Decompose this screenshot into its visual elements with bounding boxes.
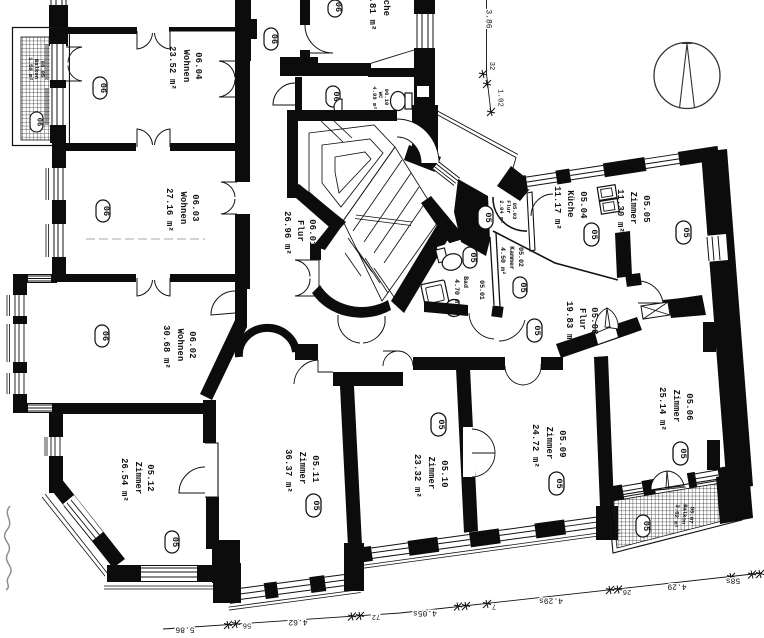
svg-text:26.54 m²: 26.54 m² <box>119 458 129 502</box>
svg-text:36.37 m²: 36.37 m² <box>283 449 293 493</box>
svg-text:06: 06 <box>100 331 110 341</box>
svg-text:4.50 m²: 4.50 m² <box>499 247 506 275</box>
svg-text:Wohnen: Wohnen <box>181 50 191 83</box>
svg-text:Zimmer: Zimmer <box>426 457 436 490</box>
svg-text:4.62: 4.62 <box>288 617 307 626</box>
svg-text:05.05: 05.05 <box>641 195 651 222</box>
svg-text:06: 06 <box>269 34 279 44</box>
svg-text:26: 26 <box>623 587 631 595</box>
svg-text:Zimmer: Zimmer <box>544 427 554 460</box>
svg-text:06.02: 06.02 <box>187 331 197 358</box>
svg-text:05: 05 <box>468 252 478 262</box>
svg-text:05: 05 <box>678 448 688 458</box>
svg-text:Kammer: Kammer <box>508 246 515 270</box>
svg-text:3.86: 3.86 <box>484 9 493 28</box>
svg-text:05.06: 05.06 <box>684 393 694 420</box>
svg-text:Bad: Bad <box>462 276 469 288</box>
svg-text:05.01: 05.01 <box>478 280 485 300</box>
svg-text:19.83 m²: 19.83 m² <box>564 301 574 345</box>
svg-text:4.09 m²: 4.09 m² <box>371 86 378 110</box>
svg-text:06: 06 <box>333 2 343 12</box>
svg-text:56: 56 <box>243 621 251 629</box>
svg-text:Zimmer: Zimmer <box>671 390 681 423</box>
svg-text:05: 05 <box>641 521 651 531</box>
svg-text:05: 05 <box>483 212 493 222</box>
svg-text:32: 32 <box>487 62 495 70</box>
svg-text:05.08: 05.08 <box>589 307 599 334</box>
svg-text:Zimmer: Zimmer <box>628 192 638 225</box>
svg-text:05: 05 <box>436 419 446 429</box>
svg-text:Flur: Flur <box>577 308 587 330</box>
svg-text:Flur: Flur <box>505 200 512 213</box>
svg-text:4.29s: 4.29s <box>539 596 563 605</box>
svg-text:2.04 m²: 2.04 m² <box>498 200 505 224</box>
svg-text:05.04: 05.04 <box>578 191 588 219</box>
svg-text:26.96 m²: 26.96 m² <box>282 211 292 255</box>
svg-text:58s: 58s <box>726 576 741 585</box>
svg-text:27.16 m²: 27.16 m² <box>164 188 174 232</box>
svg-text:24.72 m²: 24.72 m² <box>530 424 540 468</box>
svg-text:1.02: 1.02 <box>496 89 504 107</box>
svg-text:05.12: 05.12 <box>145 464 155 491</box>
svg-text:05: 05 <box>518 282 528 292</box>
svg-text:23.52 m²: 23.52 m² <box>167 46 177 90</box>
svg-text:72: 72 <box>372 612 380 620</box>
svg-text:4.70 m²: 4.70 m² <box>453 279 460 307</box>
svg-text:4.29: 4.29 <box>667 582 686 591</box>
svg-text:05.11: 05.11 <box>310 455 320 482</box>
svg-text:30.68 m²: 30.68 m² <box>161 325 171 369</box>
svg-text:Wohnen: Wohnen <box>175 329 185 362</box>
svg-text:05.02: 05.02 <box>517 247 524 267</box>
svg-text:05: 05 <box>532 325 542 335</box>
svg-text:05: 05 <box>170 537 180 547</box>
svg-text:4.05s: 4.05s <box>413 608 437 617</box>
svg-text:Flur: Flur <box>295 220 305 242</box>
svg-text:06: 06 <box>35 118 43 126</box>
svg-text:05: 05 <box>311 500 321 510</box>
svg-text:che: che <box>381 0 391 16</box>
svg-text:05: 05 <box>681 227 691 237</box>
svg-text:1.50 m²: 1.50 m² <box>27 57 34 81</box>
svg-text:06.03: 06.03 <box>190 194 200 221</box>
svg-text:7: 7 <box>492 602 496 610</box>
svg-text:11.17 m²: 11.17 m² <box>552 186 562 230</box>
svg-text:05: 05 <box>554 478 564 488</box>
svg-text:05.09: 05.09 <box>557 430 567 457</box>
svg-text:23.32 m²: 23.32 m² <box>412 454 422 498</box>
svg-text:06: 06 <box>98 83 108 93</box>
svg-text:06: 06 <box>101 206 111 216</box>
svg-text:.81 m²: .81 m² <box>367 0 377 30</box>
svg-text:05: 05 <box>589 229 599 239</box>
svg-text:05.10: 05.10 <box>439 460 449 487</box>
svg-text:Zimmer: Zimmer <box>133 462 143 495</box>
svg-text:06.01: 06.01 <box>307 219 317 246</box>
svg-text:Küche: Küche <box>565 190 575 217</box>
svg-text:11.30 m²: 11.30 m² <box>615 189 625 233</box>
svg-text:06.04: 06.04 <box>193 52 203 80</box>
svg-text:5.86: 5.86 <box>175 625 194 634</box>
svg-text:Wohnen: Wohnen <box>178 192 188 225</box>
svg-text:25.14 m²: 25.14 m² <box>657 387 667 431</box>
svg-text:Zimmer: Zimmer <box>297 452 307 485</box>
